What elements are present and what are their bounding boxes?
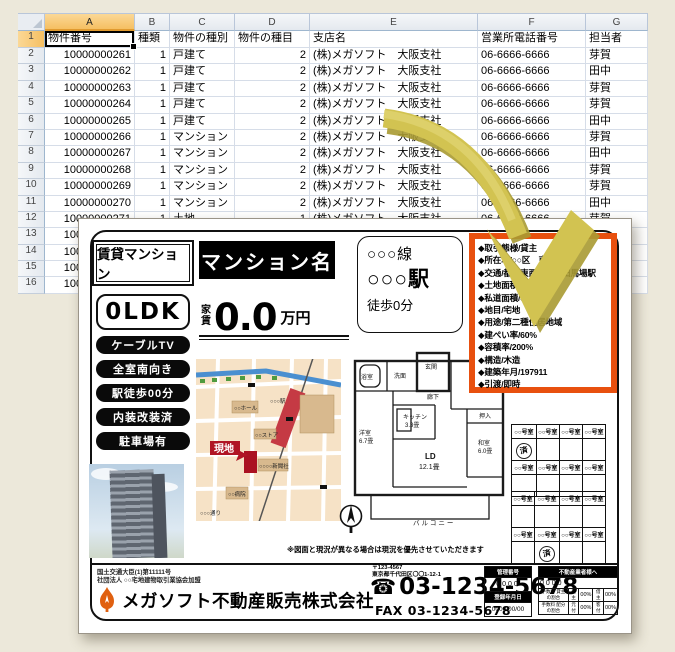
cell[interactable]: 2 [235,64,310,80]
column-header-row: ABCDEFG [18,13,648,31]
screenshot-root: ABCDEFG 1物件番号種類物件の種別物件の種目支店名営業所電話番号担当者21… [0,0,675,652]
cell[interactable]: マンション [170,196,235,212]
cell[interactable]: 10000000261 [45,48,135,64]
svg-text:洋室: 洋室 [359,429,371,437]
room-number-cell: ○○号室 [536,425,559,439]
cell[interactable]: 10000000264 [45,97,135,113]
cell[interactable]: 田中 [586,64,648,80]
svg-text:3.3畳: 3.3畳 [405,422,419,429]
cell[interactable]: 1 [135,179,170,195]
detail-line: ◆取引態様/貸主 [478,242,609,254]
room-number-cell: ○○号室 [582,492,605,506]
svg-text:○○ストア: ○○ストア [255,432,279,439]
select-all-corner[interactable] [18,13,45,31]
cell[interactable]: 2 [235,130,310,146]
cell[interactable]: 2 [235,196,310,212]
table-row: 8100000002671マンション2(株)メガソフト 大阪支社06-6666-… [18,146,648,162]
done-stamp: 済 [514,442,533,461]
property-name-box: マンション名 [199,241,335,279]
cell[interactable]: 10000000266 [45,130,135,146]
property-flyer: 賃貸マンション 0LDK マンション名 家賃 0.0 万円 ○○○線 ○○○駅 … [78,218,632,634]
row-header-10[interactable]: 10 [18,179,45,195]
row-header-1[interactable]: 1 [18,31,45,48]
header-cell[interactable]: 営業所電話番号 [478,31,586,48]
column-header-B[interactable]: B [135,13,170,31]
room-grid-lower: ○○号室○○号室○○号室○○号室○○号室○○号室○○号室○○号室済 [511,491,606,564]
room-number-cell: ○○号室 [512,492,535,506]
cell[interactable]: 06-6666-6666 [478,146,586,162]
row-header-12[interactable]: 12 [18,212,45,228]
cell[interactable]: (株)メガソフト 大阪支社 [310,64,478,80]
cell[interactable]: (株)メガソフト 大阪支社 [310,179,478,195]
room-status-cell [582,542,605,564]
room-status-cell [559,542,582,564]
svg-text:6.7畳: 6.7畳 [359,438,373,445]
cell[interactable]: 芽賀 [586,179,648,195]
cell[interactable]: 芽賀 [586,81,648,97]
feature-badge: 駅徒歩00分 [96,384,190,402]
cell[interactable]: 戸建て [170,64,235,80]
cell[interactable]: 2 [235,146,310,162]
svg-text:○○○駅: ○○○駅 [270,398,286,405]
row-header-13[interactable]: 13 [18,228,45,244]
cell[interactable]: 田中 [586,196,648,212]
walk-time: 徒歩0分 [367,294,462,318]
cell[interactable]: 06-6666-6666 [478,81,586,97]
detail-line: ◆用途/第二種住居地域 [478,316,609,328]
property-type-box: 賃貸マンション [96,244,190,282]
detail-line: ◆私道面積/6.12㎡ [478,292,609,304]
cell[interactable]: 10000000262 [45,64,135,80]
location-map: ○○ホール ○○○駅 ○○ストア ○○○○新聞社 ○○病院 ○○○通り 現地 [196,359,341,521]
room-status-cell [535,506,560,528]
row-header-3[interactable]: 3 [18,64,45,80]
ldk-box: 0LDK [96,294,190,330]
row-header-15[interactable]: 15 [18,261,45,277]
svg-text:洗面: 洗面 [394,372,406,380]
header-cell[interactable]: 物件の種目 [235,31,310,48]
cell[interactable]: マンション [170,146,235,162]
cell[interactable]: 06-6666-6666 [478,97,586,113]
room-status-cell: 済 [512,439,537,461]
cell[interactable]: 1 [135,81,170,97]
table-row: 3100000002621戸建て2(株)メガソフト 大阪支社06-6666-66… [18,64,648,80]
header-cell[interactable]: 支店名 [310,31,478,48]
cell[interactable]: 2 [235,48,310,64]
column-header-D[interactable]: D [235,13,310,31]
cell[interactable]: 戸建て [170,48,235,64]
room-number-cell: ○○号室 [559,528,582,542]
row-header-9[interactable]: 9 [18,163,45,179]
company-name: メガソフト不動産販売株式会社 [122,588,374,613]
room-grid-upper: ○○号室○○号室○○号室○○号室済○○号室○○号室○○号室○○号室 [511,424,606,497]
rent-value: 0.0 [214,299,277,337]
detail-line: ◆容積率/200% [478,341,609,353]
feature-badge: 駐車場有 [96,432,190,450]
column-header-C[interactable]: C [170,13,235,31]
table-row: 4100000002631戸建て2(株)メガソフト 大阪支社06-6666-66… [18,81,648,97]
svg-text:LD: LD [425,452,436,461]
admin-mini-table: 管理番号 0000 登録年月日 0000/00/00 [484,566,532,617]
table-row: 11100000002701マンション2(株)メガソフト 大阪支社06-6666… [18,196,648,212]
cell[interactable]: 1 [135,114,170,130]
row-header-2[interactable]: 2 [18,48,45,64]
detail-line: ◆所在地/○○区 東金町 [478,254,609,266]
cell[interactable]: 10000000267 [45,146,135,162]
cell[interactable]: 1 [135,146,170,162]
feature-badge: ケーブルTV [96,336,190,354]
row-header-16[interactable]: 16 [18,277,45,293]
cell[interactable]: 田中 [586,146,648,162]
column-header-A[interactable]: A [45,13,135,31]
cell[interactable]: 2 [235,179,310,195]
room-number-cell: ○○号室 [559,461,582,475]
cell[interactable]: マンション [170,179,235,195]
cell[interactable]: (株)メガソフト 大阪支社 [310,81,478,97]
cell[interactable]: 2 [235,114,310,130]
room-number-cell: ○○号室 [535,492,560,506]
cell[interactable]: 芽賀 [586,48,648,64]
table-row: 7100000002661マンション2(株)メガソフト 大阪支社06-6666-… [18,130,648,146]
cell[interactable]: 芽賀 [586,130,648,146]
cell[interactable]: 2 [235,97,310,113]
phone-icon: ☎ [370,575,396,599]
done-stamp: 済 [537,545,556,564]
table-row: 2100000002611戸建て2(株)メガソフト 大阪支社06-6666-66… [18,48,648,64]
room-status-cell [582,439,605,461]
svg-text:和室: 和室 [478,439,490,447]
row-header-5[interactable]: 5 [18,97,45,113]
cell[interactable]: (株)メガソフト 大阪支社 [310,163,478,179]
cell[interactable]: 06-6666-6666 [478,48,586,64]
header-cell[interactable]: 物件の種別 [170,31,235,48]
room-number-cell: ○○号室 [582,461,605,475]
svg-text:玄関: 玄関 [425,363,437,371]
row-header-4[interactable]: 4 [18,81,45,97]
rent-block: 家賃 0.0 万円 [199,283,349,337]
cell[interactable]: 10000000268 [45,163,135,179]
cell[interactable]: 1 [135,196,170,212]
cell[interactable]: 10000000270 [45,196,135,212]
svg-text:○○病院: ○○病院 [228,490,246,498]
cell[interactable]: 10000000269 [45,179,135,195]
room-status-cell: 済 [535,542,560,564]
row-header-8[interactable]: 8 [18,146,45,162]
cell[interactable]: 10000000263 [45,81,135,97]
cell[interactable]: (株)メガソフト 大阪支社 [310,146,478,162]
room-number-cell: ○○号室 [535,528,560,542]
table-row: 10100000002691マンション2(株)メガソフト 大阪支社06-6666… [18,179,648,195]
access-box: ○○○線 ○○○駅 徒歩0分 [357,236,463,333]
building-photo [89,464,184,558]
cell[interactable]: (株)メガソフト 大阪支社 [310,196,478,212]
svg-text:現地: 現地 [214,442,234,455]
cell[interactable]: 06-6666-6666 [478,196,586,212]
detail-line: ◆構造/木造 [478,354,609,366]
svg-text:12.1畳: 12.1畳 [419,463,440,471]
company-logo-icon [94,585,120,613]
cell[interactable]: 06-6666-6666 [478,163,586,179]
feature-badges: ケーブルTV全室南向き駅徒歩00分内装改装済駐車場有 [96,336,190,456]
table-row: 1物件番号種類物件の種別物件の種目支店名営業所電話番号担当者 [18,31,648,48]
cell[interactable]: 06-6666-6666 [478,114,586,130]
cell[interactable]: 06-6666-6666 [478,64,586,80]
cell[interactable]: 06-6666-6666 [478,179,586,195]
cell[interactable]: 戸建て [170,81,235,97]
header-cell[interactable]: 担当者 [586,31,648,48]
cell[interactable]: 1 [135,97,170,113]
feature-badge: 内装改装済 [96,408,190,426]
detail-line: ◆建ぺい率/60% [478,329,609,341]
column-header-G[interactable]: G [586,13,648,31]
svg-text:バルコニー: バルコニー [413,519,455,527]
building-front [109,469,156,558]
room-status-cell [512,542,535,564]
property-details-box: ◆取引態様/貸主◆所在地/○○区 東金町◆交通/都営東西線 高田馬場駅◆土地面積… [469,233,617,393]
row-header-14[interactable]: 14 [18,245,45,261]
room-status-cell [512,506,535,528]
table-row: 5100000002641戸建て2(株)メガソフト 大阪支社06-6666-66… [18,97,648,113]
svg-text:キッチン: キッチン [403,414,427,421]
room-number-cell: ○○号室 [582,425,605,439]
row-header-6[interactable]: 6 [18,114,45,130]
table-row: 9100000002681マンション2(株)メガソフト 大阪支社06-6666-… [18,163,648,179]
cell[interactable]: 1 [135,163,170,179]
row-header-7[interactable]: 7 [18,130,45,146]
cell[interactable]: 2 [235,81,310,97]
room-status-cell [559,439,582,461]
broker-mini-table: 不動産業者様へ 0000 手数料 貸主の割合 貸主 00% 借主 00% 手数料… [538,566,618,615]
cell[interactable]: 1 [135,64,170,80]
license-text: 国土交通大臣(1)第11111号 社団法人 ○○宅地建物取引業協会加盟 [97,569,201,585]
detail-line: ◆交通/都営東西線 高田馬場駅 [478,267,609,279]
cell[interactable]: 芽賀 [586,97,648,113]
disclaimer-note: ※図面と現況が異なる場合は現況を優先させていただきます [287,545,513,555]
rent-unit: 万円 [281,307,311,328]
cell[interactable]: マンション [170,163,235,179]
cell[interactable]: 戸建て [170,97,235,113]
room-number-cell: ○○号室 [512,528,535,542]
room-status-cell [536,439,559,461]
header-cell[interactable]: 種類 [135,31,170,48]
cell[interactable]: 1 [135,130,170,146]
svg-text:6.0畳: 6.0畳 [478,448,492,455]
cell[interactable]: (株)メガソフト 大阪支社 [310,97,478,113]
station-name: ○○○駅 [367,266,462,294]
room-number-cell: ○○号室 [559,425,582,439]
cell[interactable]: 1 [135,48,170,64]
table-row: 6100000002651戸建て2(株)メガソフト 大阪支社06-6666-66… [18,114,648,130]
rail-line: ○○○線 [367,244,462,266]
room-status-cell [559,506,582,528]
row-header-11[interactable]: 11 [18,196,45,212]
cell[interactable]: 10000000265 [45,114,135,130]
cell[interactable]: (株)メガソフト 大阪支社 [310,130,478,146]
header-cell[interactable]: 物件番号 [45,31,135,48]
cell[interactable]: (株)メガソフト 大阪支社 [310,114,478,130]
detail-line: ◆引渡/即時 [478,378,609,390]
detail-line: ◆建築年月/197911 [478,366,609,378]
detail-line: ◆地目/宅地 [478,304,609,316]
rent-underline [199,335,349,340]
cell[interactable]: 芽賀 [586,163,648,179]
column-header-F[interactable]: F [478,13,586,31]
fill-handle[interactable] [130,43,137,50]
svg-text:○○ホール: ○○ホール [234,405,258,412]
cell[interactable]: 2 [235,163,310,179]
cell[interactable]: 田中 [586,114,648,130]
column-header-E[interactable]: E [310,13,478,31]
room-number-cell: ○○号室 [512,461,537,475]
cell[interactable]: 戸建て [170,114,235,130]
room-number-cell: ○○号室 [559,492,582,506]
cell[interactable]: 06-6666-6666 [478,130,586,146]
room-number-cell: ○○号室 [512,425,537,439]
rent-label: 家賃 [201,305,211,327]
svg-text:廊下: 廊下 [427,393,439,401]
detail-line: ◆土地面積/45.36㎡ [478,279,609,291]
room-number-cell: ○○号室 [582,528,605,542]
compass-icon [337,501,365,535]
svg-text:○○○○新聞社: ○○○○新聞社 [259,462,289,470]
svg-text:押入: 押入 [479,412,491,420]
svg-text:○○○通り: ○○○通り [200,509,221,517]
cell[interactable]: (株)メガソフト 大阪支社 [310,48,478,64]
cell[interactable]: マンション [170,130,235,146]
svg-text:浴室: 浴室 [361,373,373,381]
room-status-cell [582,506,605,528]
room-number-cell: ○○号室 [536,461,559,475]
feature-badge: 全室南向き [96,360,190,378]
